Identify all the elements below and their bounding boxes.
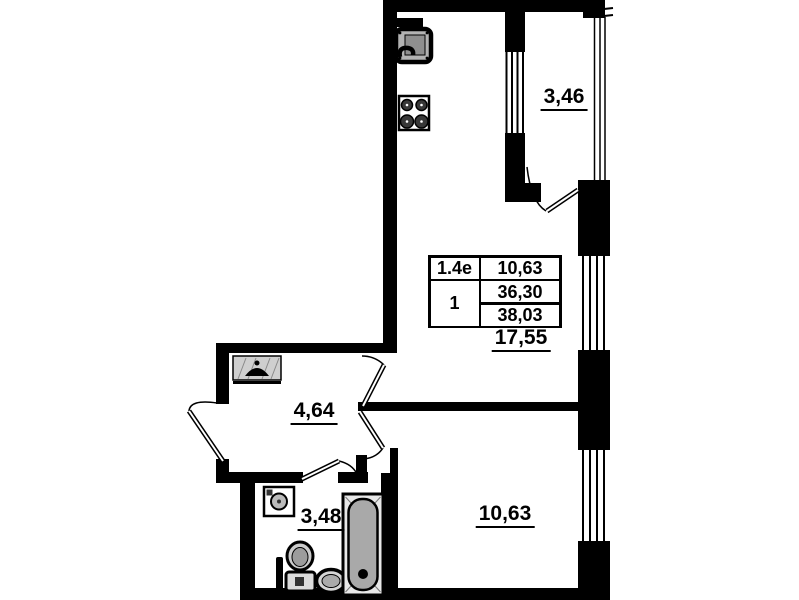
- wall-segment: [358, 402, 582, 411]
- wall-segment: [216, 459, 229, 483]
- wardrobe-icon: [233, 356, 281, 384]
- bedroom-window: [583, 450, 604, 541]
- wash-basin-icon: [317, 570, 346, 593]
- stamp-total-area: 38,03: [481, 305, 559, 326]
- stamp-living-area: 10,63: [481, 258, 559, 279]
- entrance-door: [189, 402, 223, 461]
- towel-pipe-icon: [276, 557, 283, 590]
- balcony-glazing: [595, 8, 614, 181]
- room-label-bathroom: 3,48: [298, 506, 345, 531]
- room-label-bedroom: 10,63: [476, 503, 535, 528]
- kitchen-sink-icon: [396, 29, 431, 62]
- living-room-door: [362, 356, 384, 406]
- stamp-rooms-count: 1: [431, 281, 479, 326]
- room-label-hallway: 4,64: [291, 400, 338, 425]
- room-label-kitchen-living: 17,55: [492, 327, 551, 352]
- wall-segment: [505, 133, 525, 202]
- wall-segment: [383, 0, 605, 12]
- stove-icon: [399, 96, 429, 130]
- floor-plan-canvas: 3,46 17,55 4,64 3,48 10,63 1.4e 1 10,63 …: [0, 0, 799, 600]
- tick-mark: [604, 15, 613, 16]
- wall-segment: [240, 478, 255, 600]
- washing-machine-icon: [264, 487, 294, 516]
- wall-segment: [216, 343, 229, 404]
- ventilation-duct-icon: [397, 18, 423, 27]
- toilet-icon: [286, 542, 315, 591]
- floor-plan-drawing: [0, 0, 799, 600]
- door-swing-arc: [362, 356, 384, 365]
- room-label-balcony: 3,46: [541, 86, 588, 111]
- wall-segment: [216, 343, 397, 353]
- wall-segment: [578, 350, 610, 450]
- wall-segment: [578, 180, 610, 256]
- stamp-area-without-balcony: 36,30: [481, 281, 559, 302]
- stamp-flat-type: 1.4e: [431, 258, 479, 279]
- bathtub-icon: [343, 494, 383, 595]
- unit-stamp-table: 1.4e 1 10,63 36,30 38,03: [428, 255, 562, 328]
- tick-mark: [604, 8, 613, 9]
- living-room-window: [583, 256, 604, 350]
- door-swing-arc: [189, 402, 217, 411]
- kitchen-balcony-window: [507, 50, 524, 134]
- wall-segment: [505, 0, 525, 52]
- wall-segment: [583, 0, 605, 18]
- bedroom-door: [358, 412, 383, 459]
